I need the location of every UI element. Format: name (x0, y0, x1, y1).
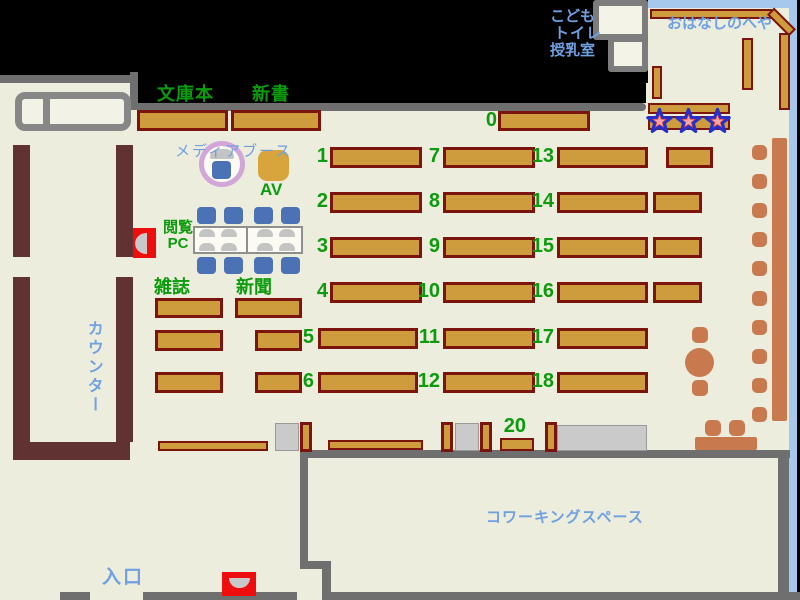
label-media-booth: メディアブース (175, 144, 292, 160)
library-floor-map: 文庫本新書雑誌新聞AV閲覧 PCメディアブースカウンター入口コワーキングスペース… (0, 0, 800, 600)
shelf-number-4: 4 (317, 281, 328, 302)
label-counter: カウンター (84, 320, 101, 415)
label-shinsho: 新書 (252, 85, 290, 104)
shelf-number-6: 6 (303, 371, 314, 392)
shelf-number-11: 11 (419, 327, 440, 348)
label-zasshi: 雑誌 (154, 278, 190, 297)
shelf-number-10: 10 (418, 281, 440, 302)
label-coworking: コワーキングスペース (486, 510, 644, 526)
shelf-number-9: 9 (429, 236, 440, 257)
labels-layer: 文庫本新書雑誌新聞AV閲覧 PCメディアブースカウンター入口コワーキングスペース… (0, 0, 800, 600)
shelf-number-3: 3 (317, 236, 328, 257)
label-nursing: 授乳室 (550, 43, 595, 59)
label-entrance: 入口 (102, 568, 144, 588)
shelf-number-16: 16 (532, 281, 554, 302)
label-ohanashi-room: おはなしのへや (667, 16, 772, 32)
shelf-number-5: 5 (303, 327, 314, 348)
shelf-number-15: 15 (532, 236, 554, 257)
shelf-number-0: 0 (486, 110, 497, 131)
shelf-number-14: 14 (532, 191, 554, 212)
shelf-number-8: 8 (429, 191, 440, 212)
label-shinbun: 新聞 (236, 278, 272, 297)
label-kids: こども (550, 9, 595, 25)
shelf-number-12: 12 (418, 371, 440, 392)
shelf-number-7: 7 (429, 146, 440, 167)
label-av: AV (260, 181, 282, 199)
shelf-number-18: 18 (532, 371, 554, 392)
label-bunkobon: 文庫本 (157, 85, 214, 104)
shelf-number-13: 13 (532, 146, 554, 167)
shelf-number-1: 1 (317, 146, 328, 167)
shelf-number-17: 17 (532, 327, 554, 348)
shelf-number-20: 20 (504, 416, 526, 437)
label-etsuran-pc: 閲覧 PC (163, 220, 193, 252)
shelf-number-2: 2 (317, 191, 328, 212)
label-toilet: トイレ (554, 26, 602, 42)
